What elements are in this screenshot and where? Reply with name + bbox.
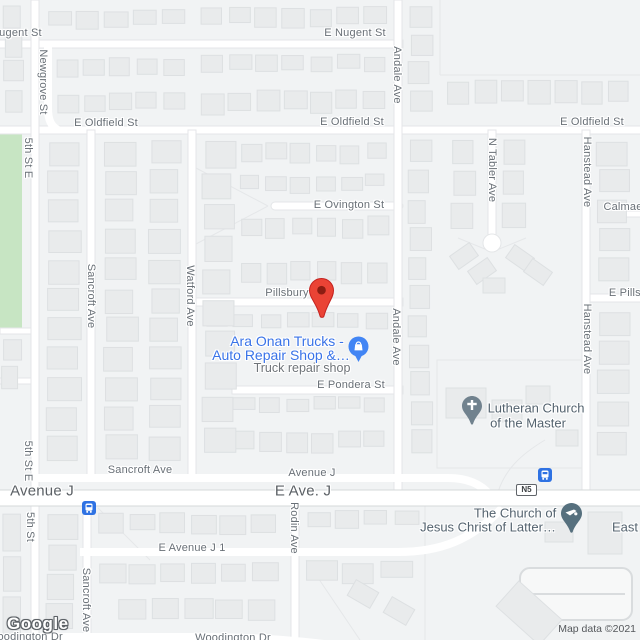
street-label: Hanstead Ave: [581, 304, 593, 375]
route-badge-n5: N5: [516, 484, 537, 496]
lds-church-pin-icon[interactable]: [561, 503, 582, 534]
street-label: Hanstead Ave: [581, 137, 593, 208]
poi-lds-line1[interactable]: The Church of: [474, 506, 556, 521]
red-map-pin[interactable]: [309, 278, 334, 319]
street-label: E Oldfield St: [560, 116, 624, 128]
street-label: E Nugent St: [324, 27, 386, 39]
street-label: N Tabler Ave: [486, 138, 498, 202]
street-label: Woodington Dr: [195, 632, 271, 640]
street-label: Sancroft Ave: [80, 568, 92, 633]
shopping-bag-pin-icon[interactable]: [348, 336, 369, 363]
street-label: E Oldfield St: [320, 116, 384, 128]
street-label: E Nugent St: [0, 27, 42, 39]
google-logo[interactable]: Google: [7, 614, 69, 634]
poi-lutheran-line2[interactable]: of the Master: [490, 416, 566, 431]
street-label: Calmae: [603, 201, 640, 213]
street-label: Sancroft Ave: [85, 264, 97, 329]
street-label: Andale Ave: [390, 308, 402, 365]
poi-lds-line2[interactable]: Jesus Christ of Latter…: [420, 520, 556, 535]
bus-stop-icon[interactable]: [82, 501, 96, 515]
street-label: E Ave. J: [275, 483, 331, 500]
street-label: Rodin Ave: [288, 502, 300, 554]
street-label: Avenue J: [10, 483, 74, 500]
street-label: E Oldfield St: [74, 117, 138, 129]
street-label: Watford Ave: [184, 265, 196, 327]
map-attribution: Map data ©2021: [558, 623, 636, 635]
street-label: E Pillsbury St: [609, 287, 640, 299]
street-label: 5th St E: [22, 138, 34, 179]
street-label: Sancroft Ave: [108, 464, 173, 476]
poi-east-truncated[interactable]: East: [612, 520, 638, 535]
church-pin-icon[interactable]: [462, 396, 482, 426]
street-label: 5th St E: [22, 441, 34, 482]
street-labels-layer: E Nugent StE Nugent StE Oldfield StE Old…: [0, 0, 640, 640]
street-label: Andale Ave: [391, 46, 403, 103]
street-label: E Pondera St: [317, 379, 385, 391]
poi-lutheran-line1[interactable]: Lutheran Church: [488, 401, 585, 416]
street-label: Avenue J: [288, 467, 335, 479]
street-label: E Ovington St: [314, 199, 384, 211]
bus-stop-icon[interactable]: [538, 468, 552, 482]
street-label: Newgrove St: [37, 49, 49, 114]
street-label: E Avenue J 1: [158, 542, 225, 554]
street-label: 5th St: [24, 512, 36, 542]
map-viewport[interactable]: E Nugent StE Nugent StE Oldfield StE Old…: [0, 0, 640, 640]
poi-ara-onan-category: Truck repair shop: [254, 361, 351, 375]
